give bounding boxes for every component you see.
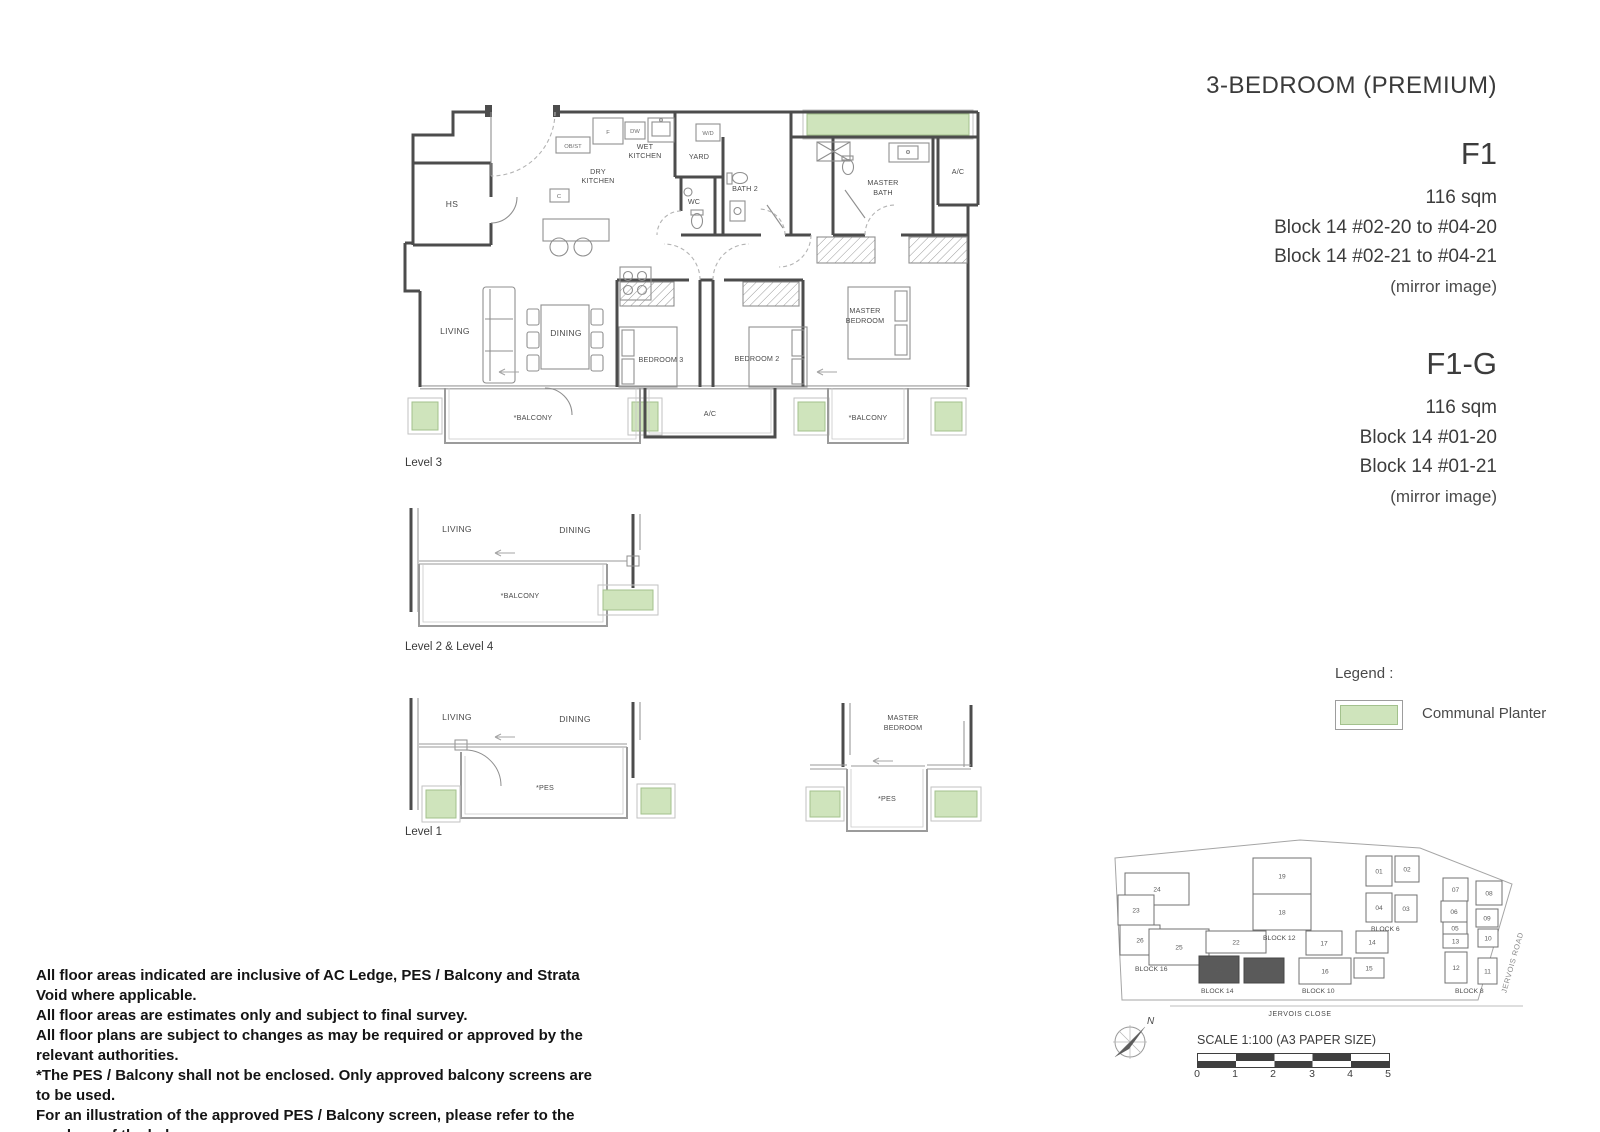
bath2-toilet xyxy=(733,173,748,184)
island-counter xyxy=(543,219,609,241)
sofa xyxy=(483,287,515,383)
hs-door-arc xyxy=(491,197,517,223)
master-toilet xyxy=(843,160,854,175)
direction-arrow xyxy=(495,734,515,740)
floorplan-level3: HS LIVING DINING DRY KITCHEN WET KITCHEN… xyxy=(393,85,993,485)
site-building-number: 19 xyxy=(1278,874,1286,881)
site-building-number: 08 xyxy=(1485,891,1493,898)
floorplan-page: 3-BEDROOM (PREMIUM) F1 116 sqm Block 14 … xyxy=(0,0,1600,1132)
fixture-label: W/D xyxy=(702,131,713,137)
block-label: BLOCK 14 xyxy=(1201,988,1234,995)
bath2-basin xyxy=(730,201,745,221)
block-label: BLOCK 6 xyxy=(1371,926,1400,933)
room-label: MASTER xyxy=(887,713,918,722)
unit-area: 116 sqm xyxy=(1360,393,1497,423)
site-building-number: 24 xyxy=(1153,887,1161,894)
floorplan-level1-master: MASTER BEDROOM *PES xyxy=(785,695,990,835)
master-shower-screen xyxy=(845,190,865,218)
communal-planter xyxy=(806,787,981,821)
legend-planter-label: Communal Planter xyxy=(1422,705,1546,722)
fixture-label: C xyxy=(557,194,561,200)
site-buildings: 2423262519182221201714161501020403070605… xyxy=(1118,856,1502,984)
scale-tick: 3 xyxy=(1301,1068,1323,1080)
block-label: BLOCK 8 xyxy=(1455,988,1484,995)
level-caption: Level 3 xyxy=(405,457,442,469)
room-label: BATH xyxy=(873,188,892,197)
room-label: WET xyxy=(637,142,654,151)
room-label: *BALCONY xyxy=(849,413,888,422)
unit-block-line: Block 14 #02-20 to #04-20 xyxy=(1274,213,1497,243)
mirror-note: (mirror image) xyxy=(1274,272,1497,301)
site-building-number: 01 xyxy=(1375,869,1383,876)
room-label: LIVING xyxy=(440,326,470,336)
scale-bar xyxy=(1197,1053,1390,1068)
room-label: BEDROOM xyxy=(846,316,885,325)
room-label: DINING xyxy=(550,328,582,338)
site-building-number: 18 xyxy=(1278,910,1286,917)
scale-tick: 0 xyxy=(1186,1068,1208,1080)
wc-toilet xyxy=(692,214,703,229)
unit-info-f1g: F1-G 116 sqm Block 14 #01-20 Block 14 #0… xyxy=(1360,346,1497,511)
site-building-number: 10 xyxy=(1484,936,1492,943)
bath2-shower xyxy=(767,205,783,228)
room-label: MASTER xyxy=(867,178,898,187)
room-label: BEDROOM 3 xyxy=(639,355,684,364)
site-building-number: 09 xyxy=(1483,916,1491,923)
fixture-label: F xyxy=(606,130,610,136)
room-label: DINING xyxy=(559,525,591,535)
scale-bar-row xyxy=(1198,1061,1389,1068)
room-label: KITCHEN xyxy=(629,151,662,160)
site-building-number: 15 xyxy=(1365,966,1373,973)
site-building-number: 06 xyxy=(1450,909,1458,916)
site-building-number: 21 xyxy=(1215,967,1223,974)
wardrobe xyxy=(743,282,799,306)
mirror-note: (mirror image) xyxy=(1360,482,1497,511)
scale-tick: 4 xyxy=(1339,1068,1361,1080)
disclaimer-line: All floor areas indicated are inclusive … xyxy=(36,966,596,1006)
window-lines xyxy=(420,386,968,389)
level-caption: Level 1 xyxy=(405,826,442,838)
direction-arrow xyxy=(873,758,893,764)
disclaimer-line: All floor areas are estimates only and s… xyxy=(36,1006,596,1026)
site-building-number: 16 xyxy=(1321,969,1329,976)
road-label-jervois-close: JERVOIS CLOSE xyxy=(1268,1011,1331,1018)
room-label: BEDROOM 2 xyxy=(735,354,780,363)
site-building-number: 22 xyxy=(1232,940,1240,947)
site-building-number: 03 xyxy=(1402,906,1410,913)
scale-tick: 1 xyxy=(1224,1068,1246,1080)
room-labels: HS LIVING DINING DRY KITCHEN WET KITCHEN… xyxy=(405,129,964,469)
room-label: KITCHEN xyxy=(582,176,615,185)
site-building-number: 14 xyxy=(1368,940,1376,947)
page-title: 3-BEDROOM (PREMIUM) xyxy=(1206,72,1497,100)
room-label: *PES xyxy=(878,794,896,803)
disclaimer: All floor areas indicated are inclusive … xyxy=(36,966,596,1132)
fixture-label: DW xyxy=(630,129,640,135)
disclaimer-line: For an illustration of the approved PES … xyxy=(36,1106,596,1132)
site-building-number: 23 xyxy=(1132,908,1140,915)
scale-tick: 5 xyxy=(1377,1068,1399,1080)
direction-arrow xyxy=(817,369,837,375)
site-building-number: 20 xyxy=(1260,968,1268,975)
fixtures xyxy=(483,112,967,415)
room-label: HS xyxy=(446,199,458,209)
block-label: BLOCK 12 xyxy=(1263,935,1296,942)
site-building-number: 11 xyxy=(1484,969,1491,976)
balcony-door-arc xyxy=(545,388,572,415)
window-lines xyxy=(419,561,627,564)
scale-tick: 2 xyxy=(1262,1068,1284,1080)
room-label: *PES xyxy=(536,783,554,792)
site-building-number: 05 xyxy=(1451,926,1459,933)
floorplan-level24: LIVING DINING *BALCONY Level 2 & Level 4 xyxy=(395,500,685,660)
unit-type-name: F1 xyxy=(1274,136,1497,172)
room-label: DRY xyxy=(590,167,606,176)
floorplan-level1: LIVING DINING *PES Level 1 xyxy=(395,690,685,845)
fixture-label: OB/ST xyxy=(564,144,582,150)
scale-label: SCALE 1:100 (A3 PAPER SIZE) xyxy=(1197,1033,1376,1047)
room-label: BEDROOM xyxy=(884,723,923,732)
room-label: A/C xyxy=(704,409,717,418)
site-building-number: 04 xyxy=(1375,905,1383,912)
room-label: A/C xyxy=(952,167,965,176)
room-label: LIVING xyxy=(442,712,472,722)
unit-block-line: Block 14 #01-21 xyxy=(1360,452,1497,482)
level-caption: Level 2 & Level 4 xyxy=(405,641,494,653)
unit-block-line: Block 14 #02-21 to #04-21 xyxy=(1274,242,1497,272)
room-label: MASTER xyxy=(849,306,880,315)
communal-planter xyxy=(598,585,658,615)
block-label: BLOCK 10 xyxy=(1302,988,1335,995)
wardrobe xyxy=(817,237,875,263)
disclaimer-line: All floor plans are subject to changes a… xyxy=(36,1026,596,1066)
north-compass: N xyxy=(1103,1008,1165,1066)
unit-info-f1: F1 116 sqm Block 14 #02-20 to #04-20 Blo… xyxy=(1274,136,1497,301)
window-lines xyxy=(419,744,627,747)
unit-type-name: F1-G xyxy=(1360,346,1497,382)
room-label: *BALCONY xyxy=(514,413,553,422)
disclaimer-line: *The PES / Balcony shall not be enclosed… xyxy=(36,1066,596,1106)
room-label: DINING xyxy=(559,714,591,724)
site-building-number: 07 xyxy=(1452,887,1460,894)
room-label: BATH 2 xyxy=(732,184,758,193)
site-building-number: 26 xyxy=(1136,938,1144,945)
room-label: WC xyxy=(688,197,700,206)
room-label: *BALCONY xyxy=(501,591,540,600)
site-building-number: 25 xyxy=(1175,945,1183,952)
wardrobe xyxy=(620,282,674,306)
room-label: LIVING xyxy=(442,524,472,534)
unit-block-line: Block 14 #01-20 xyxy=(1360,423,1497,453)
direction-arrow xyxy=(499,369,519,375)
direction-arrow xyxy=(495,550,515,556)
room-label: YARD xyxy=(689,152,709,161)
wardrobe xyxy=(909,237,967,263)
site-building-number: 17 xyxy=(1320,941,1328,948)
site-building-number: 13 xyxy=(1452,939,1460,946)
site-plan: 2423262519182221201714161501020403070605… xyxy=(1085,825,1525,1025)
north-letter: N xyxy=(1147,1016,1155,1027)
unit-area: 116 sqm xyxy=(1274,183,1497,213)
site-building-number: 02 xyxy=(1403,867,1411,874)
window-lines xyxy=(810,765,971,769)
pes-door-arc xyxy=(465,750,501,786)
site-building-number: 12 xyxy=(1452,965,1460,972)
block-label: BLOCK 16 xyxy=(1135,966,1168,973)
legend-title: Legend : xyxy=(1335,665,1393,682)
legend-planter-swatch xyxy=(1335,700,1403,730)
